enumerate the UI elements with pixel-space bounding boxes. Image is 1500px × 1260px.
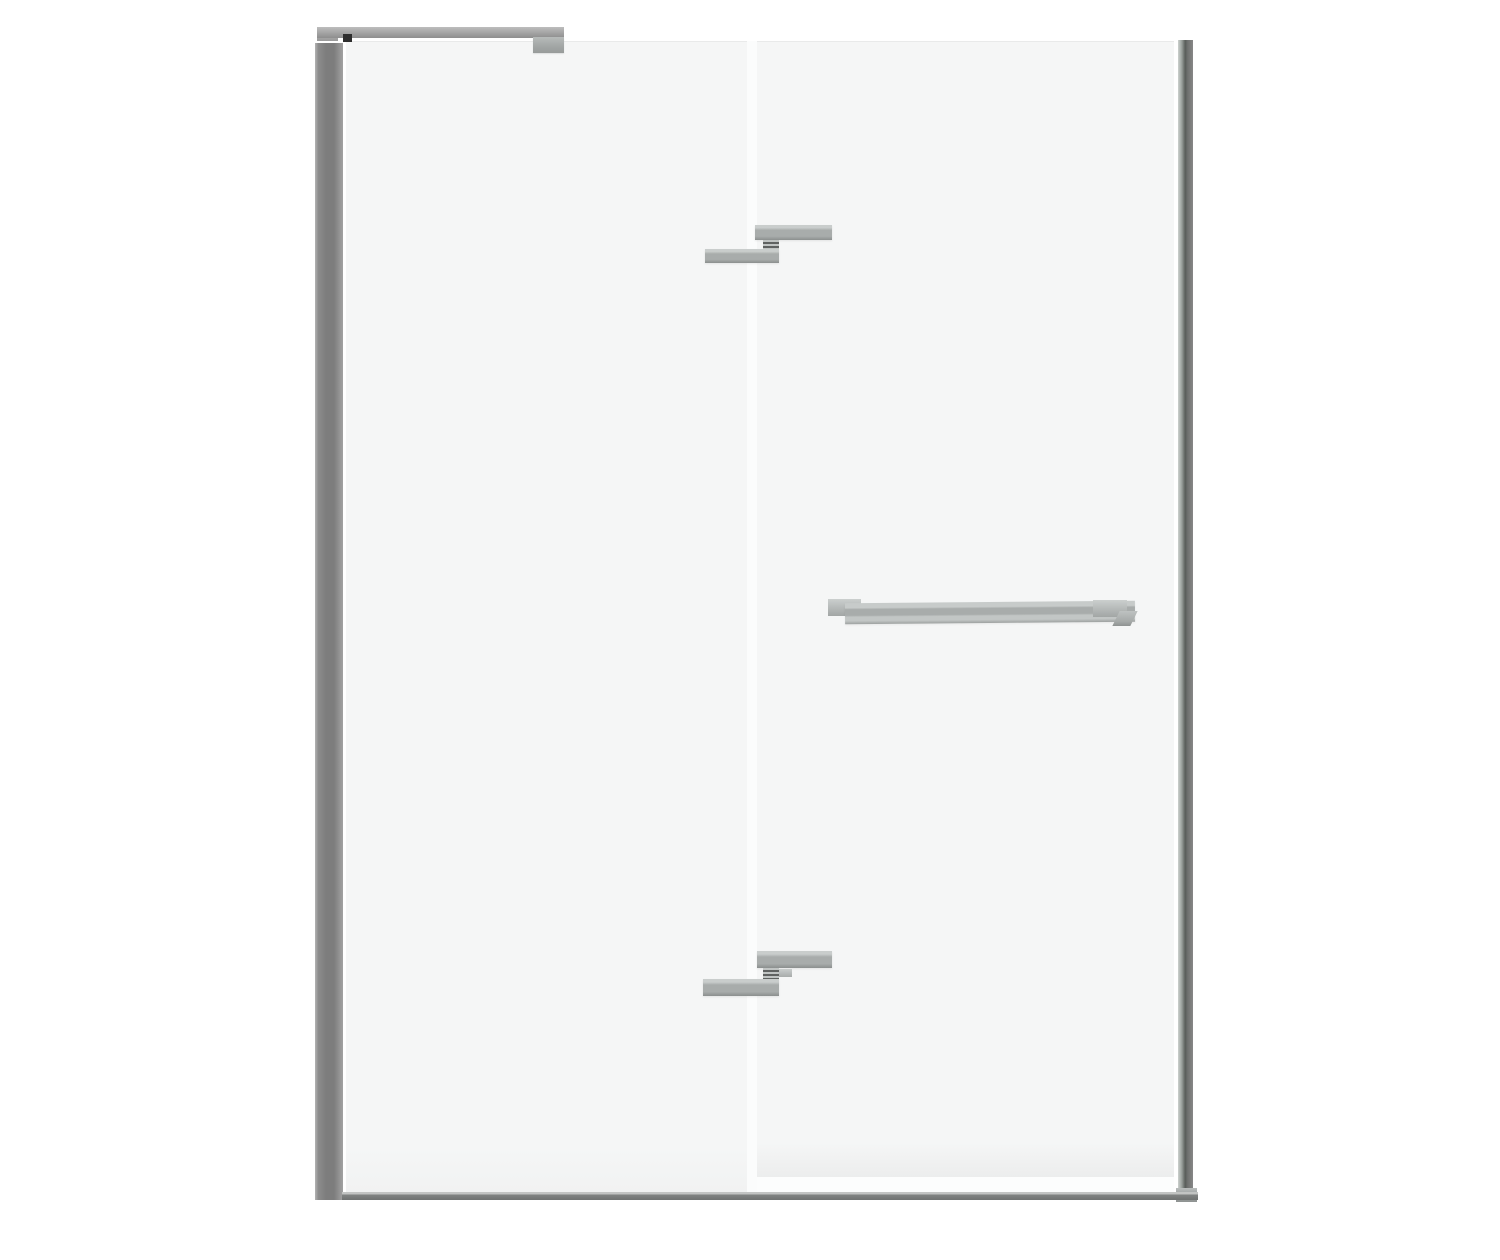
shower-door-render — [0, 0, 1500, 1260]
top-hinge-panel-plate — [705, 249, 779, 263]
support-bar-glass-clamp — [533, 37, 564, 53]
bottom-hinge-pivot-connector — [763, 968, 779, 979]
door-bottom-gap — [757, 1177, 1174, 1192]
bottom-hinge-door-plate — [757, 951, 832, 968]
top-hinge-pivot-connector — [763, 240, 779, 249]
left-wall-profile — [315, 43, 343, 1200]
bottom-sill — [342, 1192, 1198, 1200]
bottom-hinge-panel-plate — [703, 979, 779, 996]
support-bar-connector — [343, 34, 352, 42]
bottom-hinge-connector-cap — [779, 969, 792, 977]
panel-door-seam — [747, 41, 757, 1192]
top-hinge-door-plate — [755, 225, 832, 240]
top-support-bar — [317, 27, 564, 38]
fixed-glass-panel — [346, 41, 747, 1193]
right-vertical-profile — [1178, 40, 1193, 1190]
towel-bar-rail — [845, 601, 1135, 625]
